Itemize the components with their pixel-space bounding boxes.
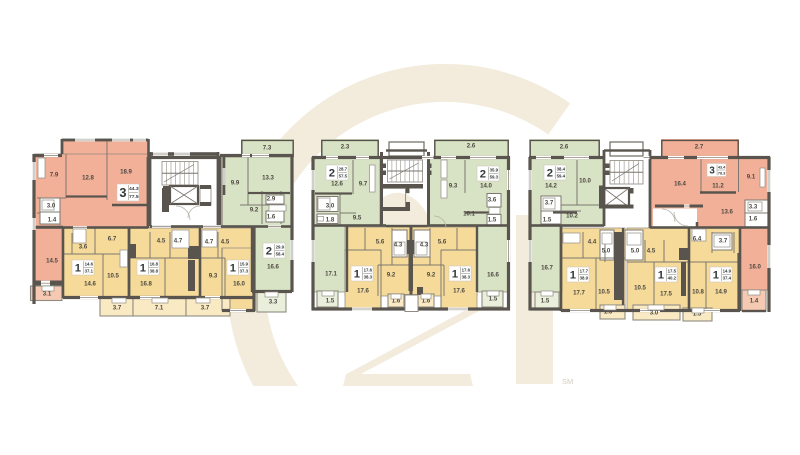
svg-text:77.5: 77.5 bbox=[129, 194, 139, 200]
svg-text:16.8: 16.8 bbox=[150, 262, 159, 267]
svg-text:9.3: 9.3 bbox=[209, 273, 218, 280]
svg-text:2.9: 2.9 bbox=[267, 196, 276, 203]
svg-text:9.2: 9.2 bbox=[250, 207, 259, 214]
svg-text:40.2: 40.2 bbox=[668, 275, 677, 280]
svg-text:3.3: 3.3 bbox=[269, 299, 278, 306]
svg-text:1.5: 1.5 bbox=[326, 298, 335, 305]
svg-text:2.6: 2.6 bbox=[560, 144, 569, 151]
svg-text:15.9: 15.9 bbox=[240, 262, 249, 267]
svg-text:16.6: 16.6 bbox=[267, 264, 279, 271]
svg-text:4.5: 4.5 bbox=[647, 248, 656, 255]
svg-text:44.3: 44.3 bbox=[129, 186, 139, 192]
svg-text:2: 2 bbox=[547, 168, 553, 180]
svg-text:14.0: 14.0 bbox=[480, 183, 492, 190]
svg-text:37.1: 37.1 bbox=[85, 268, 94, 273]
svg-text:9.9: 9.9 bbox=[231, 180, 240, 187]
svg-text:16.6: 16.6 bbox=[487, 272, 499, 279]
svg-text:1.6: 1.6 bbox=[749, 216, 758, 223]
svg-text:3: 3 bbox=[119, 185, 126, 200]
svg-text:5.6: 5.6 bbox=[438, 239, 447, 246]
svg-text:59.4: 59.4 bbox=[557, 173, 566, 178]
svg-text:4.7: 4.7 bbox=[174, 238, 183, 245]
svg-text:28.7: 28.7 bbox=[339, 167, 348, 172]
svg-text:3.7: 3.7 bbox=[113, 305, 122, 312]
svg-text:1.8: 1.8 bbox=[326, 217, 335, 224]
svg-text:3.7: 3.7 bbox=[545, 200, 554, 207]
svg-text:2.7: 2.7 bbox=[695, 144, 704, 151]
svg-text:38.3: 38.3 bbox=[462, 274, 471, 279]
svg-text:1: 1 bbox=[452, 269, 458, 281]
svg-text:7.9: 7.9 bbox=[50, 172, 59, 179]
svg-text:17.6: 17.6 bbox=[462, 268, 471, 273]
svg-text:13.6: 13.6 bbox=[721, 209, 733, 216]
svg-text:5.0: 5.0 bbox=[631, 248, 640, 255]
svg-text:43.4: 43.4 bbox=[718, 165, 726, 169]
svg-text:16.7: 16.7 bbox=[541, 265, 553, 272]
svg-text:7.3: 7.3 bbox=[263, 145, 272, 152]
svg-text:1.5: 1.5 bbox=[489, 296, 498, 303]
svg-text:14.6: 14.6 bbox=[84, 281, 96, 288]
svg-text:38.3: 38.3 bbox=[364, 274, 373, 279]
svg-text:1.4: 1.4 bbox=[48, 217, 57, 224]
svg-text:1: 1 bbox=[354, 269, 360, 281]
svg-text:9.1: 9.1 bbox=[747, 174, 756, 181]
svg-text:14.6: 14.6 bbox=[85, 262, 94, 267]
svg-text:14.9: 14.9 bbox=[715, 289, 727, 296]
svg-text:4.4: 4.4 bbox=[588, 239, 597, 246]
svg-text:2: 2 bbox=[329, 168, 335, 180]
svg-text:1.4: 1.4 bbox=[750, 298, 759, 305]
svg-text:1: 1 bbox=[75, 263, 81, 275]
svg-text:3.3: 3.3 bbox=[749, 204, 758, 211]
svg-text:2: 2 bbox=[266, 246, 272, 258]
svg-text:4.3: 4.3 bbox=[420, 242, 429, 249]
svg-text:3: 3 bbox=[709, 166, 715, 177]
svg-text:17.5: 17.5 bbox=[668, 269, 677, 274]
svg-text:17.6: 17.6 bbox=[357, 288, 369, 295]
svg-text:4.5: 4.5 bbox=[157, 238, 166, 245]
svg-text:38.8: 38.8 bbox=[150, 268, 159, 273]
svg-text:17.6: 17.6 bbox=[364, 268, 373, 273]
svg-text:2: 2 bbox=[480, 169, 486, 181]
svg-text:3.7: 3.7 bbox=[719, 238, 728, 245]
svg-text:17.5: 17.5 bbox=[660, 291, 672, 298]
svg-text:9.7: 9.7 bbox=[359, 181, 368, 188]
svg-text:37.3: 37.3 bbox=[240, 268, 249, 273]
svg-text:35.9: 35.9 bbox=[490, 168, 499, 173]
svg-text:12.8: 12.8 bbox=[82, 175, 94, 182]
svg-text:14.9: 14.9 bbox=[723, 269, 732, 274]
svg-text:17.6: 17.6 bbox=[453, 288, 465, 295]
svg-text:9.5: 9.5 bbox=[353, 215, 362, 222]
svg-text:4.7: 4.7 bbox=[205, 239, 214, 246]
svg-text:1: 1 bbox=[140, 263, 146, 275]
svg-text:37.4: 37.4 bbox=[723, 275, 732, 280]
svg-text:17.7: 17.7 bbox=[580, 269, 589, 274]
svg-text:57.5: 57.5 bbox=[339, 173, 348, 178]
svg-text:9.2: 9.2 bbox=[387, 272, 396, 279]
svg-text:7.1: 7.1 bbox=[155, 305, 164, 312]
svg-text:10.0: 10.0 bbox=[579, 178, 591, 185]
svg-text:3.0: 3.0 bbox=[326, 203, 335, 210]
svg-text:5.6: 5.6 bbox=[376, 239, 385, 246]
svg-text:14.5: 14.5 bbox=[46, 258, 58, 265]
svg-text:3.7: 3.7 bbox=[201, 305, 210, 312]
svg-text:16.0: 16.0 bbox=[233, 281, 245, 288]
svg-text:16.4: 16.4 bbox=[674, 181, 686, 188]
svg-text:1: 1 bbox=[713, 270, 719, 282]
svg-text:1: 1 bbox=[570, 270, 576, 282]
svg-text:1.6: 1.6 bbox=[267, 214, 276, 221]
svg-text:78.3: 78.3 bbox=[718, 171, 725, 175]
svg-text:3.0: 3.0 bbox=[650, 310, 659, 317]
svg-text:38.9: 38.9 bbox=[580, 275, 589, 280]
svg-text:1.5: 1.5 bbox=[488, 217, 497, 224]
svg-text:6.7: 6.7 bbox=[108, 236, 117, 243]
svg-text:3.0: 3.0 bbox=[47, 203, 56, 210]
svg-text:5.0: 5.0 bbox=[602, 248, 611, 255]
svg-text:9.3: 9.3 bbox=[449, 183, 458, 190]
svg-text:1.5: 1.5 bbox=[541, 298, 550, 305]
svg-text:3.1: 3.1 bbox=[43, 291, 52, 298]
svg-text:58.4: 58.4 bbox=[276, 251, 285, 256]
svg-text:10.8: 10.8 bbox=[692, 289, 704, 296]
svg-text:1: 1 bbox=[658, 270, 664, 282]
svg-text:16.8: 16.8 bbox=[140, 281, 152, 288]
svg-text:13.3: 13.3 bbox=[262, 175, 274, 182]
svg-text:9.2: 9.2 bbox=[427, 272, 436, 279]
svg-text:18.9: 18.9 bbox=[120, 169, 132, 176]
svg-text:10.1: 10.1 bbox=[463, 211, 475, 218]
svg-text:11.2: 11.2 bbox=[712, 183, 724, 190]
svg-text:SM: SM bbox=[562, 377, 573, 386]
svg-text:17.7: 17.7 bbox=[573, 290, 585, 297]
svg-text:4.3: 4.3 bbox=[394, 242, 403, 249]
svg-text:59.3: 59.3 bbox=[490, 174, 499, 179]
svg-text:12.6: 12.6 bbox=[331, 181, 343, 188]
svg-text:4.5: 4.5 bbox=[221, 239, 230, 246]
svg-text:3.6: 3.6 bbox=[488, 197, 497, 204]
svg-text:3.6: 3.6 bbox=[79, 244, 88, 251]
svg-text:1.5: 1.5 bbox=[543, 217, 552, 224]
svg-text:16.0: 16.0 bbox=[749, 264, 761, 271]
svg-text:10.5: 10.5 bbox=[634, 285, 646, 292]
svg-text:38.4: 38.4 bbox=[557, 167, 566, 172]
svg-text:14.2: 14.2 bbox=[545, 183, 557, 190]
svg-text:6.4: 6.4 bbox=[693, 236, 702, 243]
svg-text:10.2: 10.2 bbox=[566, 213, 578, 220]
svg-text:2.6: 2.6 bbox=[467, 143, 476, 150]
svg-text:10.5: 10.5 bbox=[107, 273, 119, 280]
svg-text:10.5: 10.5 bbox=[598, 289, 610, 296]
svg-text:2.3: 2.3 bbox=[341, 144, 350, 151]
svg-text:29.9: 29.9 bbox=[276, 245, 285, 250]
svg-text:1: 1 bbox=[230, 263, 236, 275]
svg-text:17.1: 17.1 bbox=[325, 271, 337, 278]
